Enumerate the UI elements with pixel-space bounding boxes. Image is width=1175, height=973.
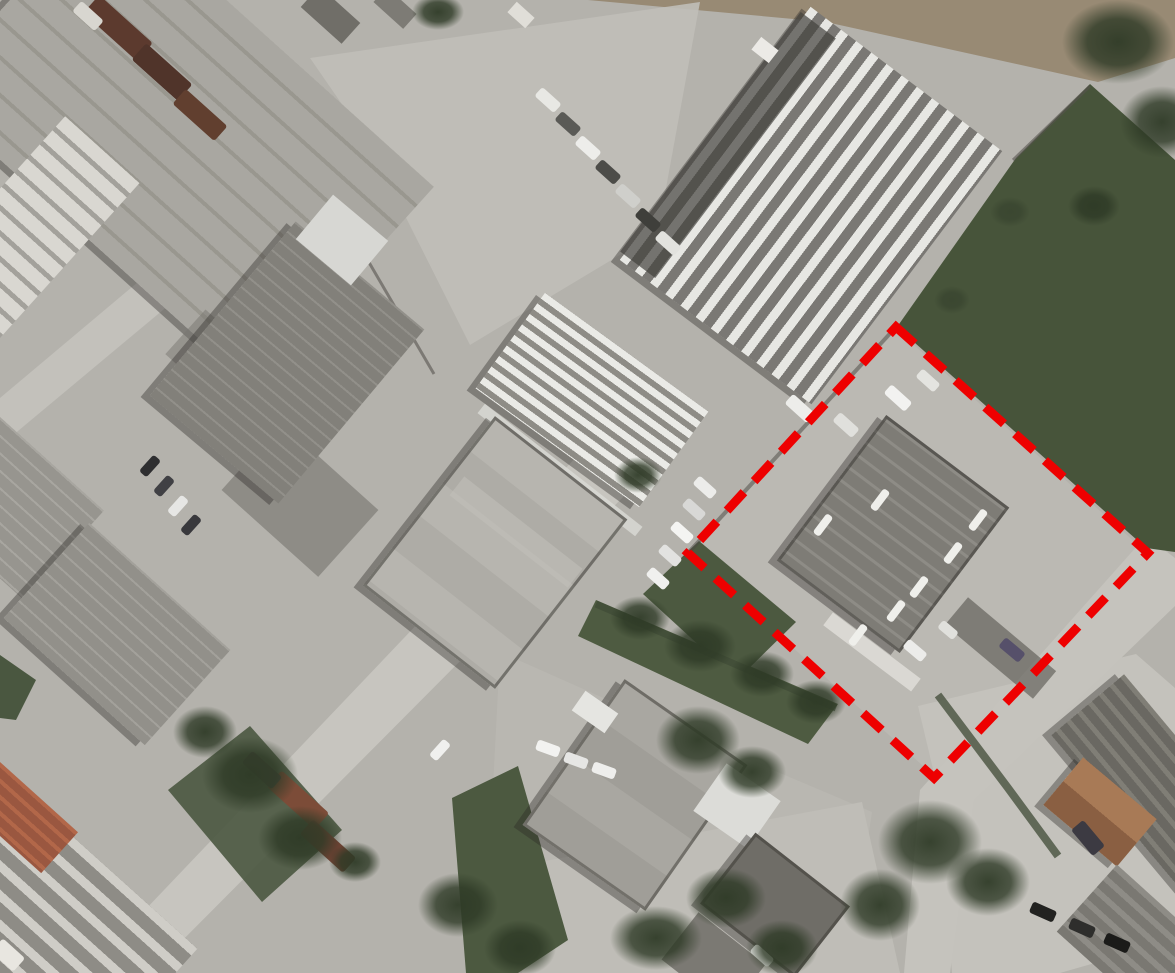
boundary-overlay-layer <box>0 0 1175 973</box>
satellite-image <box>0 0 1175 973</box>
highlighted-property-boundary <box>688 327 1148 778</box>
